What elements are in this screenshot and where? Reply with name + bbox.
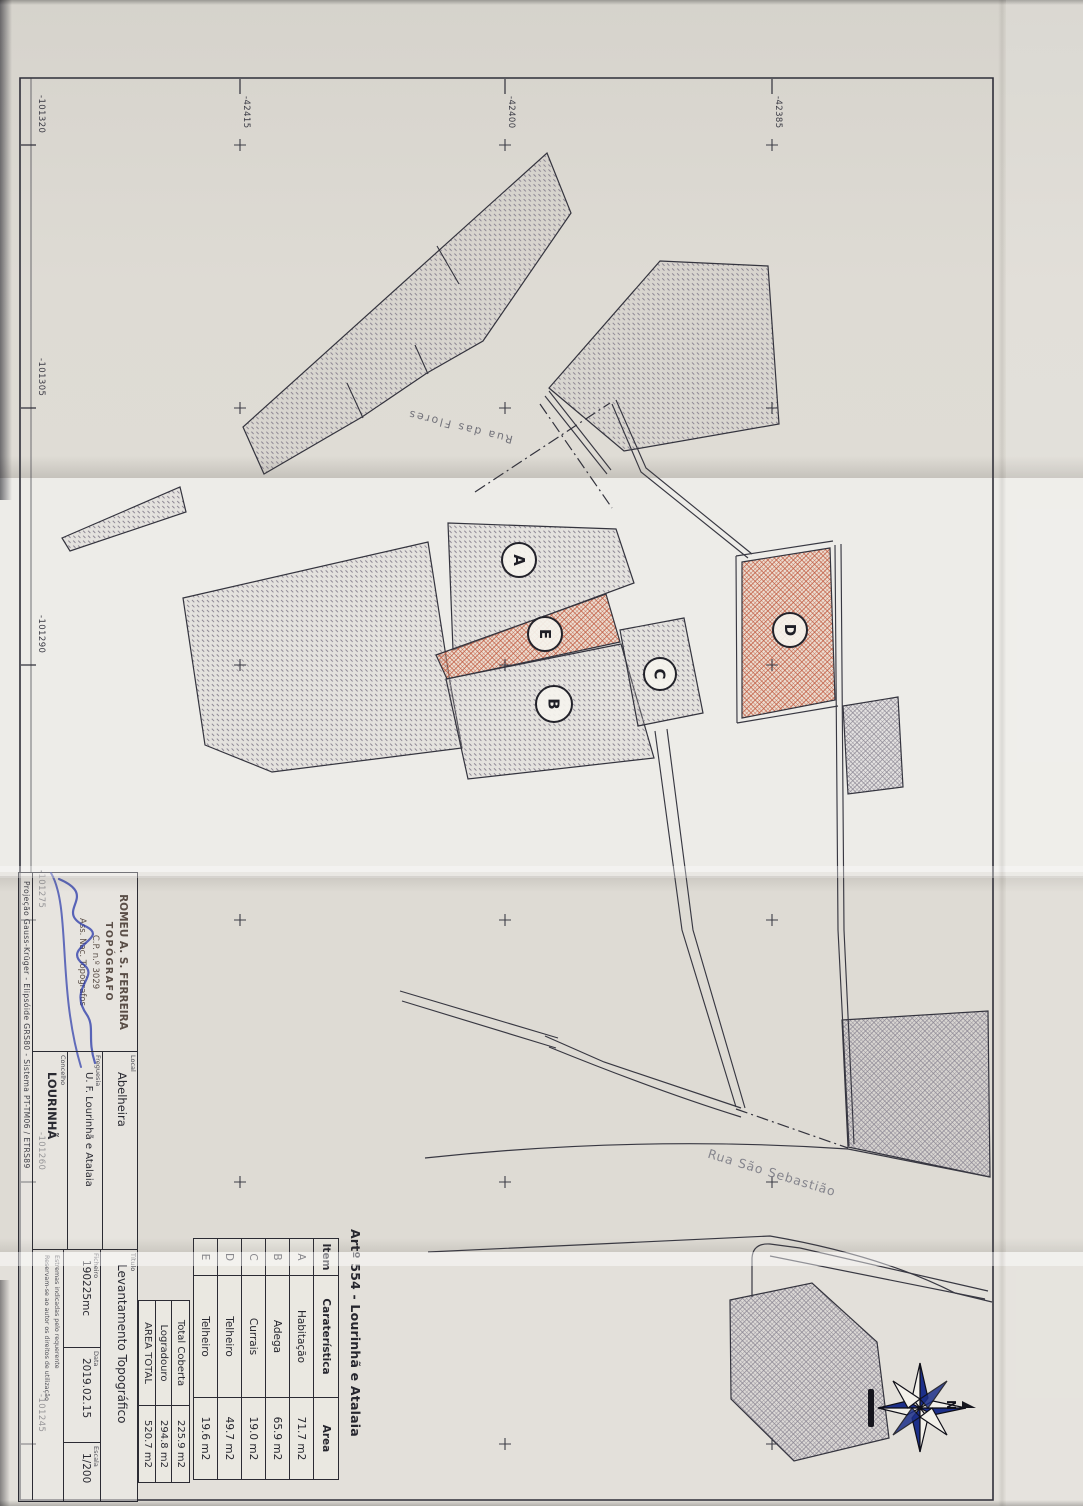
total-row: AREA TOTAL 520.7 m2 [140, 1301, 157, 1482]
field-local: Local Abelheira [103, 1052, 137, 1249]
field-ficheiro: Ficheiro 190225mc [64, 1250, 100, 1347]
total-row: Logradouro 294.8 m2 [156, 1301, 173, 1482]
north-arrowhead [962, 1401, 976, 1408]
grid-label-top: -42400 [506, 96, 516, 142]
area-totals-table: Total Coberta 225.9 m2 Logradouro 294.8 … [139, 1300, 191, 1483]
scanned-plan-sheet: -42415 -42400 -42385 -101320 -101305 -10… [0, 0, 1083, 1506]
table-row: D Telheiro 49.7 m2 [218, 1239, 242, 1479]
total-row: Total Coberta 225.9 m2 [173, 1301, 190, 1482]
parcel-label-D: D [772, 612, 808, 648]
table-row: B Adega 65.9 m2 [266, 1239, 290, 1479]
plan-article-title: Artº 554 - Lourinhã e Atalaia [348, 1229, 363, 1437]
signature [39, 867, 117, 1077]
field-escala: Escala 1/200 [64, 1442, 100, 1501]
grid-label-top: -42415 [241, 96, 251, 142]
parcel-label-C: C [643, 657, 677, 691]
grid-label-top: -42385 [773, 96, 783, 142]
grid-label-left: -101290 [36, 615, 46, 661]
compass-north-label: N [944, 1400, 958, 1416]
field-data: Data 2019.02.15 [64, 1347, 100, 1442]
projection-note: Projeção Gauss-Krüger - Elipsóide GRS80 … [20, 873, 33, 1500]
area-table-block: Artº 554 - Lourinhã e Atalaia Item Carat… [140, 1225, 365, 1502]
table-row: A Habitação 71.7 m2 [290, 1239, 314, 1479]
table-row: C Currais 19.0 m2 [242, 1239, 266, 1479]
column-header: Area [314, 1397, 338, 1479]
field-freguesia: Freguesia U. F. Lourinhã e Atalaia [68, 1052, 103, 1249]
parcel-label-E: E [527, 616, 563, 652]
parcel-label-B: B [535, 685, 573, 723]
field-concelho: Concelho LOURINHÃ [33, 1052, 68, 1249]
location-fields: Local Abelheira Freguesia U. F. Lourinhã… [33, 1051, 137, 1249]
field-titulo: Título Levantamento Topográfico [100, 1250, 137, 1501]
area-table: Item Caraterística Area A Habitação 71.7… [193, 1238, 339, 1480]
column-header: Caraterística [314, 1275, 338, 1397]
title-block-notes: Estremas indicadas pelo requerente Reser… [35, 1250, 63, 1501]
surveyor-stamp: ROMEU A. S. FERREIRA TOPÓGRAFO C.P. n.º … [33, 873, 137, 1051]
title-block: ROMEU A. S. FERREIRA TOPÓGRAFO C.P. n.º … [18, 872, 138, 1502]
grid-label-left: -101305 [36, 358, 46, 404]
compass-bar [868, 1389, 874, 1427]
table-header-row: Item Caraterística Area [314, 1239, 338, 1479]
table-row: E Telheiro 19.6 m2 [194, 1239, 218, 1479]
grid-label-left: -101320 [36, 95, 46, 141]
parcel-label-A: A [501, 542, 537, 578]
document-fields: Título Levantamento Topográfico Ficheiro… [33, 1249, 137, 1501]
column-header: Item [314, 1239, 338, 1275]
